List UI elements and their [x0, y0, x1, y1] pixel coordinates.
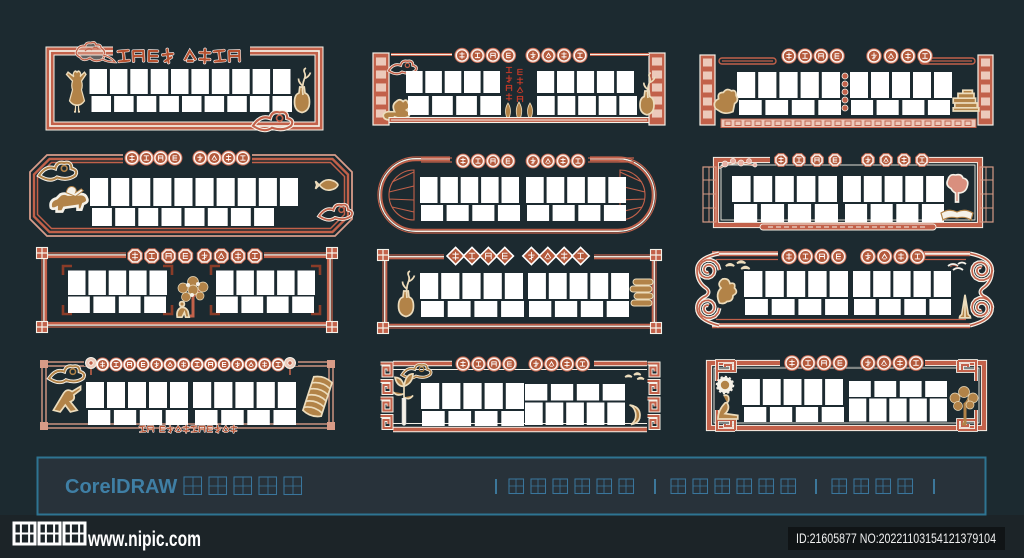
svg-text:CorelDRAW: CorelDRAW — [65, 476, 177, 498]
svg-text:ID:21605877 NO:202211031541213: ID:21605877 NO:20221103154121379104 — [796, 531, 996, 546]
svg-text:www.nipic.com: www.nipic.com — [87, 528, 201, 551]
